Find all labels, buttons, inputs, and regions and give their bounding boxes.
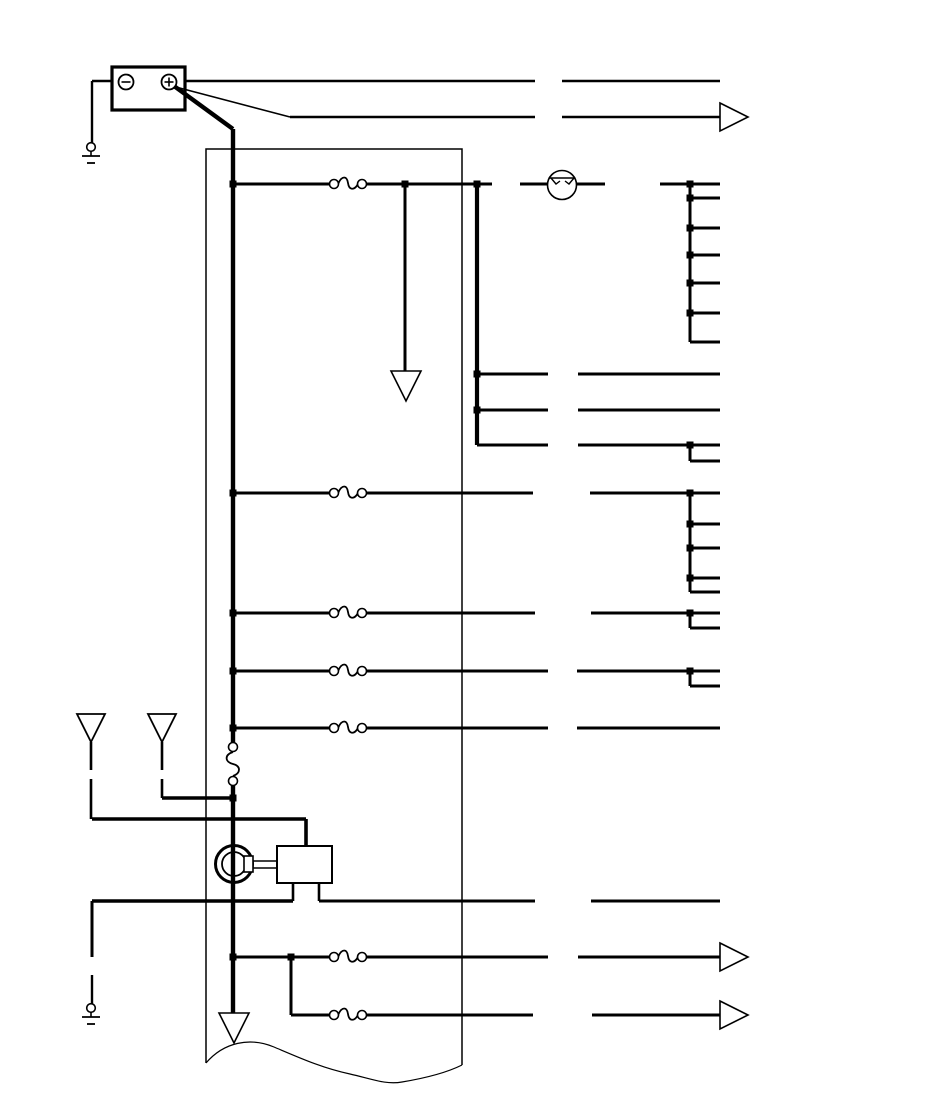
junction-dot: [230, 954, 237, 961]
junction-dot: [474, 407, 481, 414]
arrow-down: [219, 1013, 249, 1043]
fuse-terminal: [330, 724, 339, 733]
fusible-link-terminal: [229, 743, 238, 752]
junction-dot: [230, 668, 237, 675]
ground-icon: [87, 143, 96, 152]
off-page-arrow-right: [720, 103, 748, 131]
junction-dot: [687, 442, 694, 449]
junction-dot: [402, 181, 409, 188]
junction-dot: [230, 610, 237, 617]
fuse-terminal: [358, 180, 367, 189]
fuse-wave: [338, 1009, 358, 1020]
junction-dot: [687, 490, 694, 497]
wiring-diagram-page: [0, 0, 950, 1108]
fuse-wave: [338, 665, 358, 676]
junction-dot: [687, 545, 694, 552]
junction-dot: [687, 195, 694, 202]
fuse-terminal: [330, 953, 339, 962]
fuse-terminal: [330, 180, 339, 189]
fuse-wave: [338, 607, 358, 618]
junction-dot: [288, 954, 295, 961]
fusible-link-wave: [227, 752, 239, 776]
fuse-terminal: [330, 489, 339, 498]
junction-dot: [230, 725, 237, 732]
fuse-terminal: [358, 724, 367, 733]
fusible-link-terminal: [229, 777, 238, 786]
fuse-terminal: [358, 667, 367, 676]
wiring-diagram-canvas: [0, 0, 950, 1108]
ground-icon: [87, 1004, 96, 1013]
circuit-breaker-symbol: [548, 171, 577, 200]
off-page-arrow-right: [720, 1001, 748, 1029]
junction-dot: [687, 610, 694, 617]
junction-dot: [474, 371, 481, 378]
fuse-terminal: [358, 609, 367, 618]
fuse-terminal: [358, 1011, 367, 1020]
junction-dot: [230, 181, 237, 188]
junction-dot: [230, 490, 237, 497]
junction-dot: [687, 225, 694, 232]
junction-dot: [687, 668, 694, 675]
component-box: [277, 846, 332, 883]
junction-dot: [474, 181, 481, 188]
torn-edge-break-line: [206, 1042, 462, 1083]
connector-triangle-icon: [148, 714, 176, 742]
junction-box-outline: [206, 149, 462, 1065]
fuse-wave: [338, 178, 358, 189]
motor-coupling-tab: [244, 856, 253, 872]
fuse-wave: [338, 722, 358, 733]
junction-dot: [687, 521, 694, 528]
fuse-wave: [338, 951, 358, 962]
junction-dot: [687, 181, 694, 188]
junction-dot: [687, 252, 694, 259]
fuse-terminal: [358, 489, 367, 498]
junction-dot: [687, 280, 694, 287]
fuse-terminal: [330, 1011, 339, 1020]
fuse-terminal: [330, 609, 339, 618]
junction-dot: [687, 310, 694, 317]
arrow-down: [391, 371, 421, 401]
junction-dot: [687, 575, 694, 582]
connector-triangle-icon: [77, 714, 105, 742]
junction-dot: [230, 795, 237, 802]
off-page-arrow-right: [720, 943, 748, 971]
wire: [172, 86, 290, 117]
fuse-wave: [338, 487, 358, 498]
fuse-terminal: [330, 667, 339, 676]
fuse-terminal: [358, 953, 367, 962]
